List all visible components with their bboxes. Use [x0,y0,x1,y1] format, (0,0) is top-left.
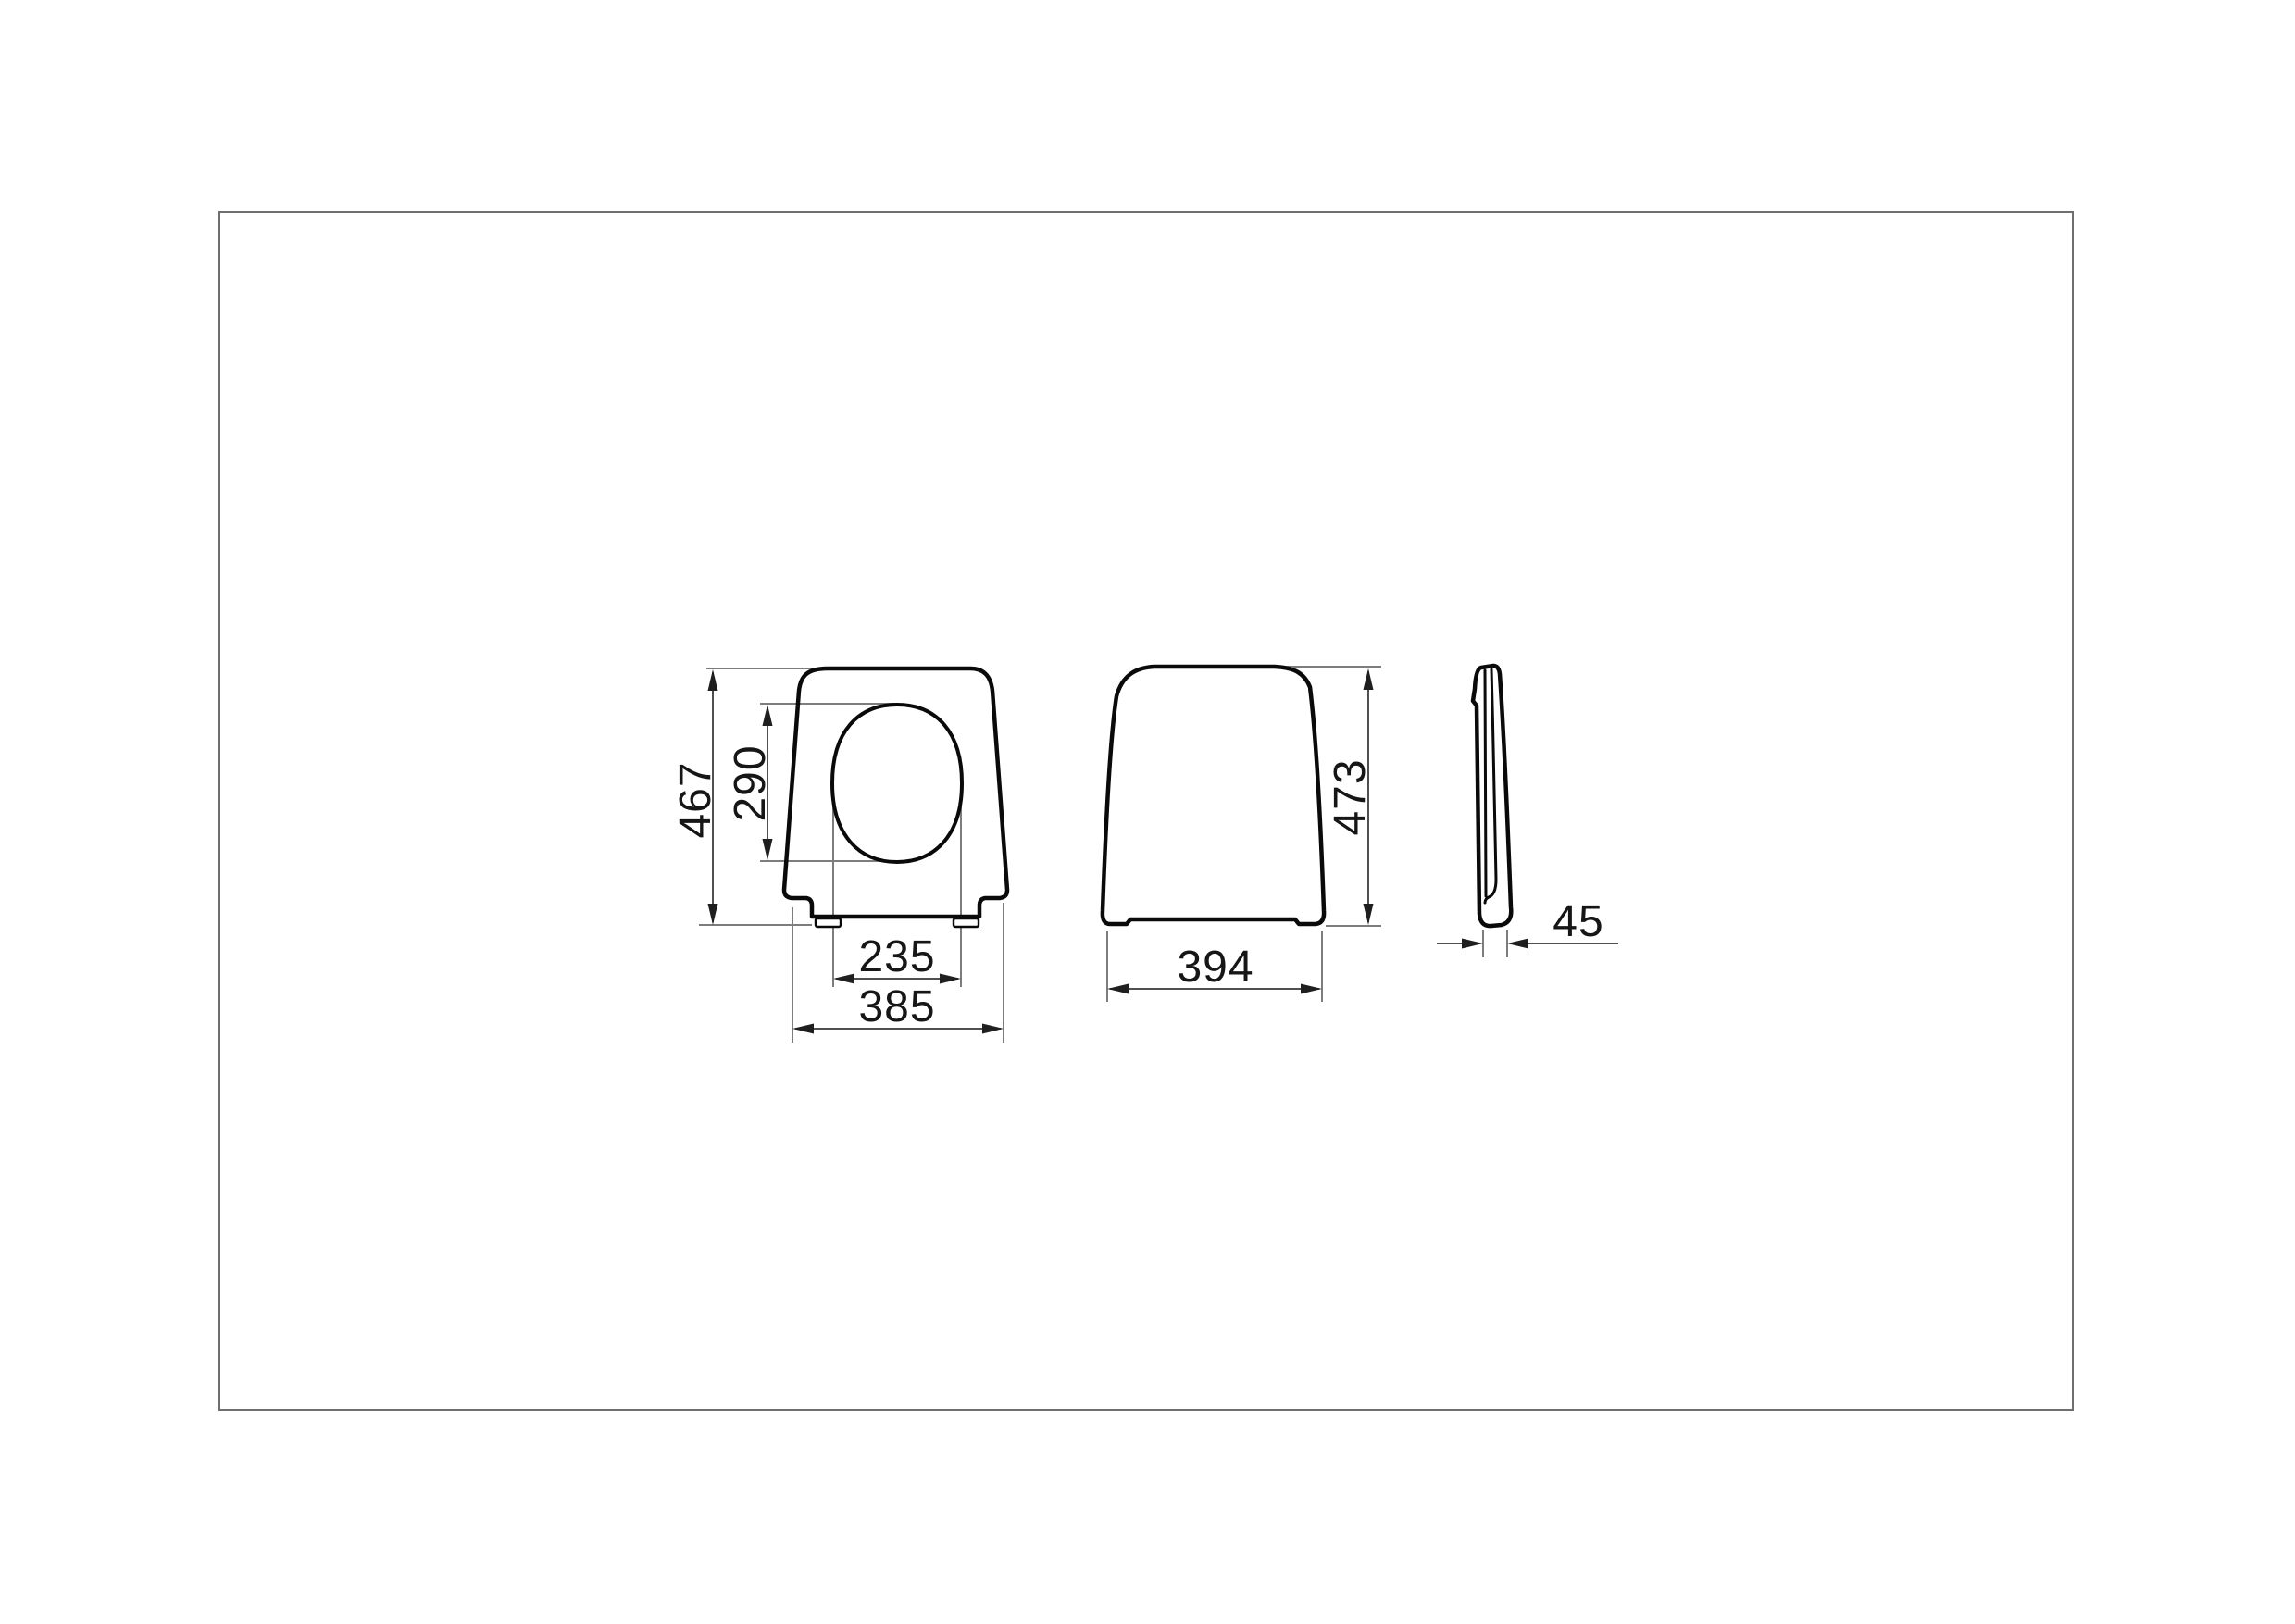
dim-385-arrow-right [982,1024,1004,1034]
top-view-bumper-right [954,918,979,927]
dim-290-arrow-down [763,839,773,860]
dim-235-arrow-right [940,974,961,984]
side-view: 45 [1437,666,1618,957]
top-view: 467 290 235 385 [671,668,1007,1043]
side-view-seat-inner-line [1485,670,1486,896]
dim-385-label: 385 [858,982,935,1031]
dim-473-arrow-down [1364,904,1374,925]
dim-467-arrow-down [708,904,718,925]
front-view: 473 394 [1103,667,1381,1002]
technical-drawing: 467 290 235 385 [0,0,2295,1624]
dim-45-label: 45 [1553,897,1603,946]
front-view-outline [1103,667,1324,924]
drawing-canvas: 467 290 235 385 [0,0,2295,1624]
top-view-bumper-left [816,918,841,927]
dim-473-arrow-up [1364,668,1374,690]
dim-235-label: 235 [858,932,935,981]
dim-473-label: 473 [1326,758,1375,835]
dim-290-label: 290 [726,744,775,821]
dim-385-arrow-left [792,1024,814,1034]
dim-394-arrow-left [1107,984,1129,994]
dim-235-arrow-left [833,974,854,984]
dim-45-arrow-left [1507,939,1528,949]
seat-opening-oval [832,705,962,862]
dim-394-label: 394 [1177,943,1254,992]
dim-467-label: 467 [671,761,720,838]
dim-290-arrow-up [763,705,773,726]
dim-394-arrow-right [1301,984,1322,994]
dim-467-arrow-up [708,669,718,691]
dim-45-arrow-right [1462,939,1483,949]
